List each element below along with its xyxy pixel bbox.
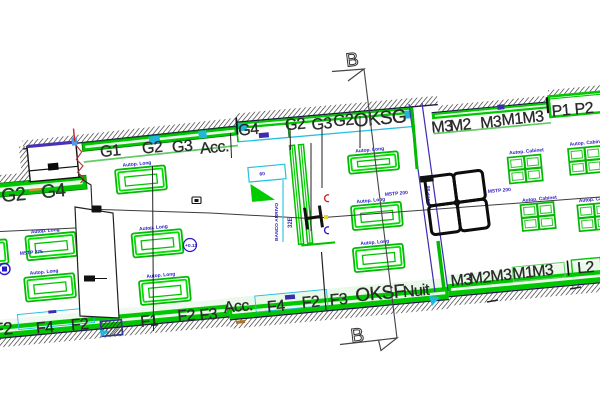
svg-text:Acc.: Acc. (223, 297, 253, 317)
svg-text:G3: G3 (171, 137, 193, 156)
svg-text:F2: F2 (70, 316, 90, 335)
svg-text:G1: G1 (99, 142, 121, 161)
svg-text:60: 60 (259, 171, 265, 178)
svg-text:F3: F3 (199, 306, 219, 325)
svg-text:F4: F4 (266, 298, 286, 317)
svg-text:M3: M3 (480, 113, 503, 132)
svg-text:M2: M2 (469, 269, 492, 288)
svg-text:F3: F3 (329, 291, 349, 310)
svg-text:B: B (345, 49, 360, 71)
svg-text:F4: F4 (35, 319, 55, 338)
svg-text:Nuit: Nuit (402, 282, 431, 301)
svg-text:B: B (349, 324, 365, 347)
svg-text:G4: G4 (40, 180, 67, 203)
svg-text:G4: G4 (238, 121, 260, 140)
svg-text:P1: P1 (551, 102, 572, 121)
svg-text:G2: G2 (284, 115, 306, 134)
svg-text:P2: P2 (574, 100, 595, 119)
svg-text:MSTP 200: MSTP 200 (488, 187, 512, 195)
svg-text:M2: M2 (449, 116, 472, 135)
svg-text:M1: M1 (501, 110, 524, 129)
svg-text:BANCO ARRIVO: BANCO ARRIVO (274, 203, 280, 241)
svg-text:M3: M3 (490, 267, 513, 286)
svg-text:F1: F1 (140, 312, 160, 331)
svg-text:Acc.: Acc. (199, 138, 229, 158)
svg-text:MSTP 80: MSTP 80 (426, 185, 432, 206)
svg-text:M3: M3 (522, 108, 545, 127)
svg-text:G2: G2 (333, 111, 355, 130)
svg-text:+0.11: +0.11 (185, 243, 197, 249)
svg-text:F2: F2 (0, 318, 13, 340)
svg-text:F2: F2 (301, 293, 321, 312)
svg-text:MSTP 200: MSTP 200 (385, 190, 409, 198)
svg-text:F2: F2 (177, 307, 197, 326)
svg-text:G2: G2 (0, 184, 26, 207)
svg-text:G2: G2 (141, 139, 163, 158)
svg-text:32E: 32E (288, 217, 294, 228)
